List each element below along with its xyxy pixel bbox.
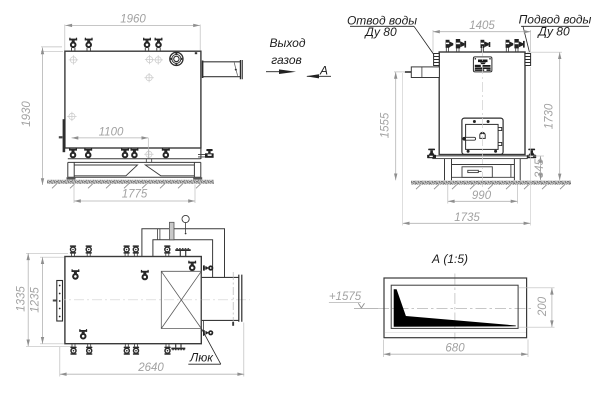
svg-text:1930: 1930 [21,101,33,127]
svg-text:1405: 1405 [469,20,495,32]
svg-text:200: 200 [537,296,549,317]
svg-text:1235: 1235 [30,287,42,313]
svg-text:1335: 1335 [16,286,28,312]
svg-text:А: А [319,64,328,78]
svg-text:1100: 1100 [99,127,124,139]
svg-text:Люк: Люк [189,351,214,365]
svg-text:газов: газов [271,53,302,67]
svg-text:680: 680 [445,343,465,355]
svg-text:Ду 80: Ду 80 [363,25,397,39]
svg-text:+1575: +1575 [329,291,362,303]
svg-text:2640: 2640 [137,362,164,374]
svg-text:Выход: Выход [269,36,305,50]
svg-text:1775: 1775 [122,189,148,201]
svg-text:345: 345 [534,158,546,178]
svg-text:1555: 1555 [380,112,392,138]
svg-text:1960: 1960 [120,14,146,26]
svg-text:А (1:5): А (1:5) [431,252,468,266]
svg-text:1735: 1735 [454,212,480,224]
svg-text:1730: 1730 [544,103,556,129]
svg-text:990: 990 [472,190,492,202]
